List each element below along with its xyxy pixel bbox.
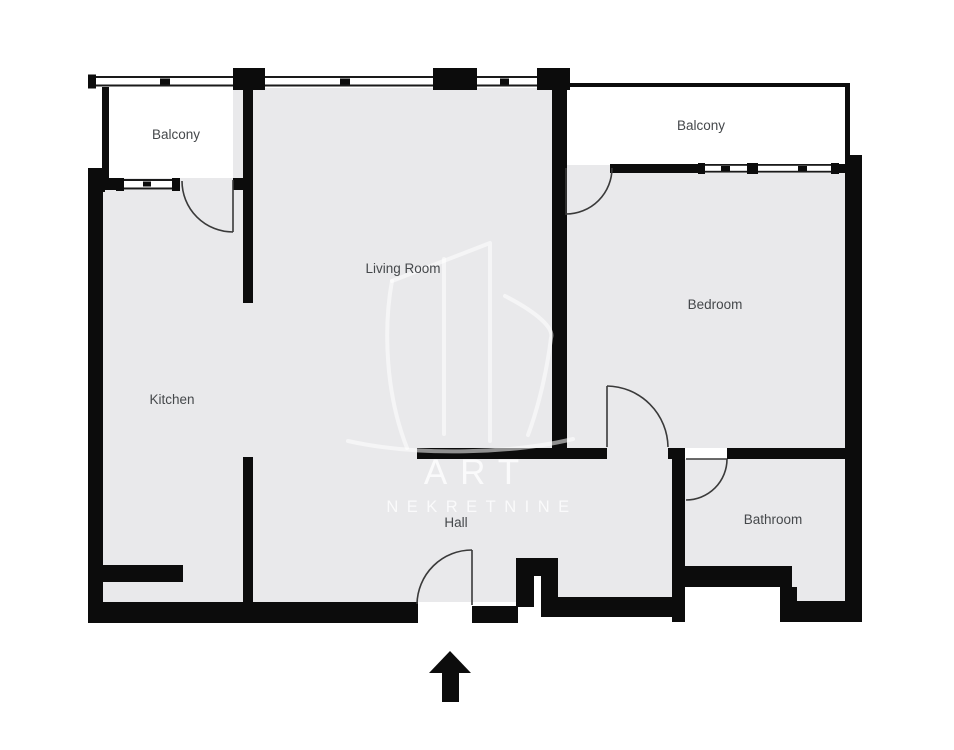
- window-living-left: [265, 76, 433, 87]
- floor-plan-canvas: ART NEKRETNINE Balcony Balcony Living Ro…: [0, 0, 954, 750]
- wall-hall-bathroom-divider: [672, 452, 685, 622]
- wall-balcony-left-corner: [88, 168, 105, 192]
- railing-balcony-right-top: [565, 83, 850, 87]
- wall-bottom-hall: [541, 597, 685, 617]
- wall-kitchen-stub: [103, 565, 183, 582]
- label-living-room: Living Room: [365, 261, 440, 276]
- label-kitchen: Kitchen: [149, 392, 194, 407]
- wall-living-bedroom-divider: [552, 88, 567, 448]
- wall-kitchen-living-divider: [243, 90, 253, 303]
- floor-plan: ART NEKRETNINE Balcony Balcony Living Ro…: [0, 0, 954, 750]
- wall-hall-top-block: [668, 448, 685, 459]
- wall-pier-left: [233, 68, 265, 90]
- wall-bedroom-top: [610, 164, 700, 173]
- wall-outer-left: [88, 170, 103, 622]
- wall-outer-right: [845, 155, 862, 622]
- wall-balcony-left-side: [102, 78, 109, 180]
- wall-kitchen-hall-divider: [243, 457, 253, 602]
- watermark-line1: ART: [424, 453, 532, 492]
- label-balcony-right: Balcony: [677, 118, 725, 133]
- label-bedroom: Bedroom: [688, 297, 743, 312]
- window-bedroom: [698, 163, 839, 174]
- shaft-slot: [534, 576, 541, 607]
- window-kitchen: [116, 178, 180, 191]
- wall-bottom-entrance-right: [472, 606, 518, 623]
- floor-hall-right: [552, 448, 685, 602]
- wall-bathroom-top: [727, 448, 845, 459]
- wall-bathroom-notch: [780, 587, 797, 622]
- window-living-right: [477, 76, 537, 87]
- wall-bathroom-bottom-left: [678, 566, 792, 587]
- wall-bottom-left: [88, 602, 418, 623]
- label-hall: Hall: [444, 515, 467, 530]
- wall-kitchen-balcony-right: [233, 178, 253, 190]
- window-balcony-left-railing: [88, 75, 233, 89]
- watermark-line2: NEKRETNINE: [386, 498, 577, 516]
- wall-pier-middle: [433, 68, 477, 90]
- label-balcony-left: Balcony: [152, 127, 200, 142]
- label-bathroom: Bathroom: [744, 512, 803, 527]
- up-arrow-icon: [429, 651, 471, 702]
- railing-balcony-right-side: [845, 83, 850, 157]
